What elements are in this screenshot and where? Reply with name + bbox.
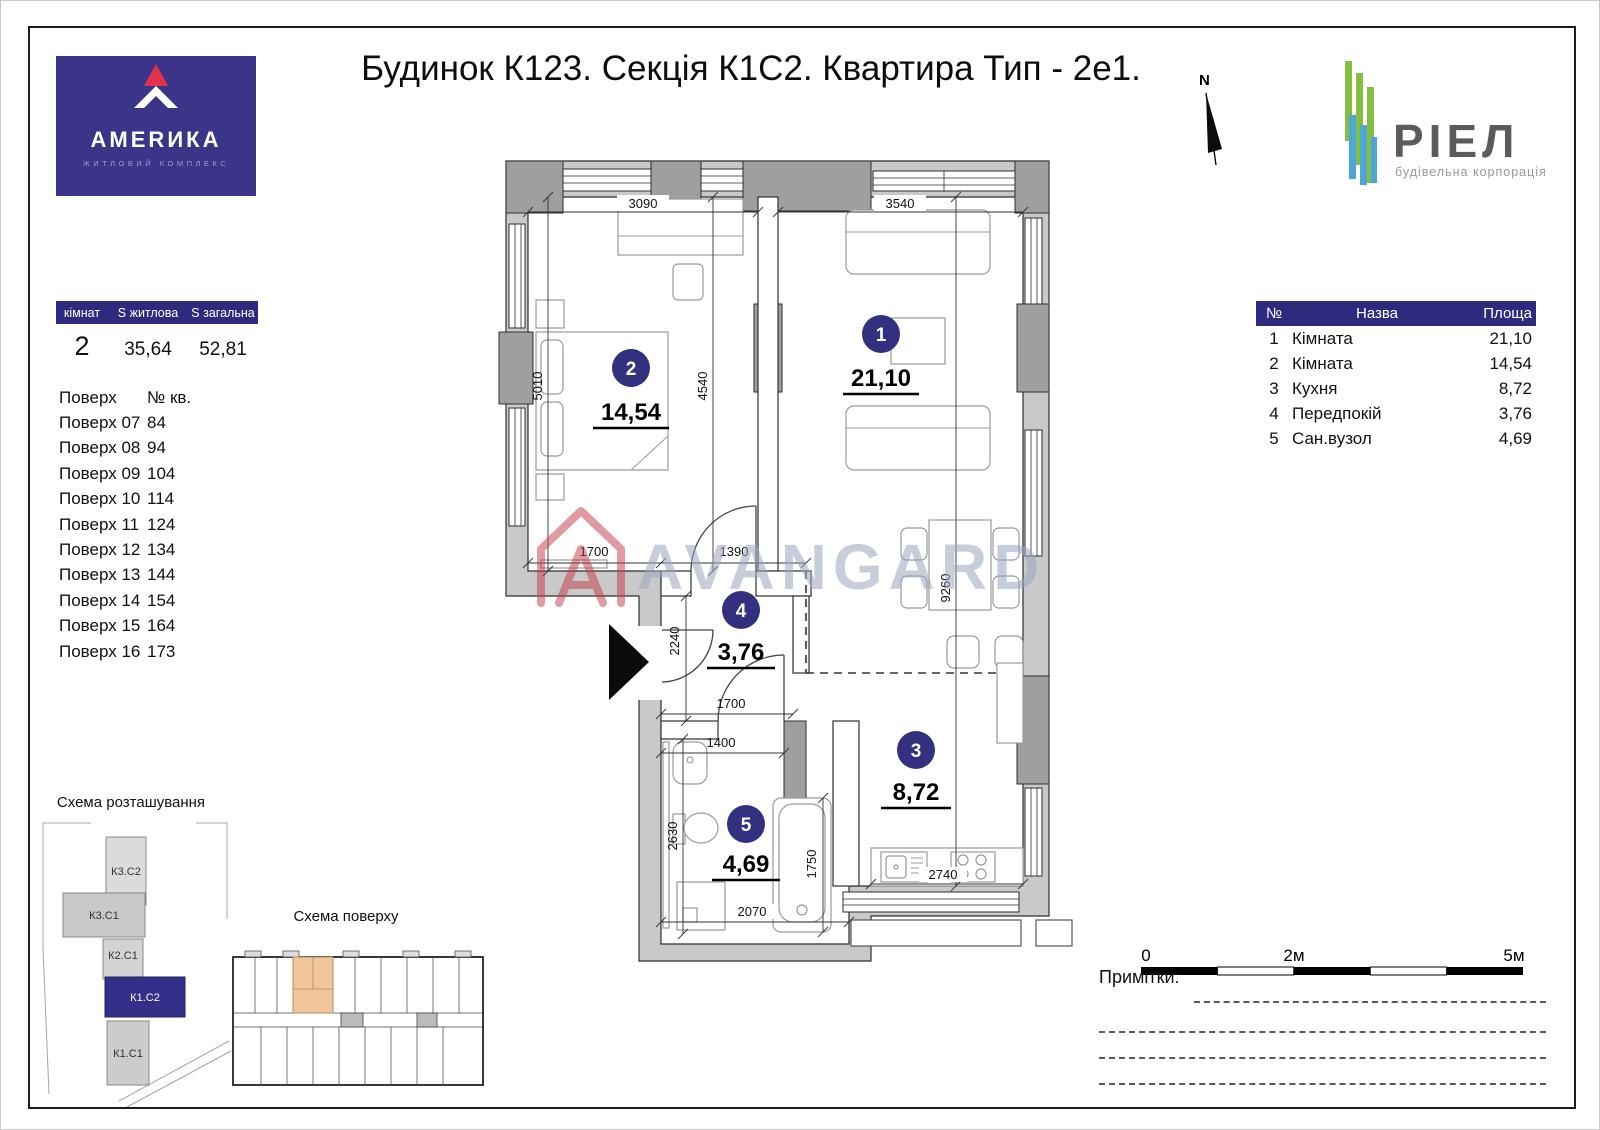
dimension-label: 3540 (886, 196, 915, 211)
table-row: 1Кімната21,10 (1256, 326, 1536, 351)
summary-header: кімнат S житлова S загальна (56, 301, 258, 324)
amerika-name: АМЕRИКА (56, 127, 256, 153)
table-row: 2Кімната14,54 (1256, 351, 1536, 376)
table-row: 4Передпокій3,76 (1256, 401, 1536, 426)
list-item: Поверх 15164 (59, 614, 229, 639)
amerika-mountain-icon (56, 56, 256, 114)
site-building-label: К3.С2 (111, 866, 141, 878)
summary-total: 52,81 (188, 339, 258, 361)
list-item: Поверх 12134 (59, 537, 229, 562)
notes-line (1099, 1083, 1546, 1085)
riel-subtitle: будівельна корпорація (1395, 165, 1547, 179)
dimension-label: 2740 (929, 867, 958, 882)
site-building-label-highlighted: К1.С2 (130, 992, 160, 1004)
legend-col-num: № (1256, 305, 1292, 322)
balcony-slab (1036, 920, 1072, 946)
site-building-label: К1.С1 (113, 1048, 143, 1060)
notes-label: Примітки: (1099, 967, 1180, 988)
furniture-kitchen (871, 663, 1023, 886)
summary-col-total: S загальна (188, 306, 258, 320)
legend-col-area: Площа (1462, 305, 1536, 322)
svg-text:4,69: 4,69 (723, 851, 770, 878)
list-item: Поверх 10114 (59, 487, 229, 512)
dimension-label: 1750 (804, 850, 819, 879)
site-plan: Схема розташування К3.С2 К3.С1 К2.С1 К1.… (31, 789, 241, 1107)
north-arrow-icon: N (1181, 61, 1241, 176)
list-item: Поверх 11124 (59, 512, 229, 537)
svg-text:3,76: 3,76 (718, 639, 765, 666)
riel-stripes-icon (1345, 61, 1377, 185)
room-marker: 4 3,76 (707, 591, 775, 668)
floor-plan: 3090 3540 5010 4540 9260 1700 1390 2240 … (491, 136, 1076, 966)
svg-text:1: 1 (876, 325, 887, 346)
dimension-label: 2070 (738, 904, 767, 919)
floors-list: Поверх № кв. Поверх 0784 Поверх 0894 Пов… (59, 385, 229, 664)
floor-scheme-drawing (233, 951, 483, 1085)
site-building-label: К2.С1 (108, 950, 138, 962)
floor-scheme: Схема поверху (221, 899, 501, 1107)
floors-col-apt: № кв. (147, 388, 191, 408)
north-label: N (1199, 72, 1210, 89)
dimension-label: 3090 (629, 196, 658, 211)
table-row: 3Кухня8,72 (1256, 376, 1536, 401)
furniture-living (846, 210, 1023, 668)
legend-col-name: Назва (1292, 305, 1462, 322)
summary-rooms: 2 (56, 331, 108, 362)
summary-col-rooms: кімнат (56, 306, 108, 320)
svg-text:2: 2 (626, 359, 637, 380)
list-item: Поверх 16173 (59, 639, 229, 664)
dimension-label: 2630 (665, 822, 680, 851)
scale-label-end: 5м (1503, 946, 1524, 965)
dimension-label: 1700 (717, 696, 746, 711)
svg-text:5: 5 (741, 815, 752, 836)
dimension-label: 5010 (530, 372, 545, 401)
page: АМЕRИКА ЖИТЛОВИЙ КОМПЛЕКС Будинок К123. … (0, 0, 1600, 1130)
list-item: Поверх 13144 (59, 563, 229, 588)
scale-label-mid: 2м (1283, 946, 1304, 965)
balcony-slab (851, 920, 1021, 946)
summary-living: 35,64 (108, 339, 188, 361)
dimension-label: 1390 (720, 544, 749, 559)
list-item: Поверх 0784 (59, 410, 229, 435)
summary-col-living: S житлова (108, 306, 188, 320)
svg-text:3: 3 (911, 741, 922, 762)
dimension-label: 2240 (667, 627, 682, 656)
summary-values: 2 35,64 52,81 (56, 331, 258, 362)
riel-logo: РІЕЛ будівельна корпорація (1319, 53, 1559, 188)
site-buildings: К3.С2 К3.С1 К2.С1 К1.С2 К1.С1 (63, 837, 185, 1085)
page-title: Будинок К123. Секція К1С2. Квартира Тип … (271, 49, 1231, 89)
svg-text:8,72: 8,72 (893, 779, 940, 806)
dimension-label: 4540 (695, 372, 710, 401)
dimension-label: 1400 (707, 735, 736, 750)
svg-text:14,54: 14,54 (601, 399, 662, 426)
list-item: Поверх 0894 (59, 436, 229, 461)
notes-line (1194, 1001, 1546, 1003)
notes-line (1099, 1031, 1546, 1033)
svg-text:4: 4 (736, 601, 747, 622)
table-row: 5Сан.вузол4,69 (1256, 426, 1536, 451)
legend-header: № Назва Площа (1256, 301, 1536, 326)
list-item: Поверх 09104 (59, 461, 229, 486)
notes-line (1099, 1057, 1546, 1059)
floors-header: Поверх № кв. (59, 385, 229, 410)
dimension-label: 9260 (938, 574, 953, 603)
room-marker: 3 8,72 (881, 731, 951, 808)
list-item: Поверх 14154 (59, 588, 229, 613)
svg-text:21,10: 21,10 (851, 365, 911, 392)
site-plan-title: Схема розташування (57, 794, 205, 811)
scale-label-start: 0 (1141, 946, 1150, 965)
amerika-logo: АМЕRИКА ЖИТЛОВИЙ КОМПЛЕКС (56, 56, 256, 196)
scale-bar-segments (1141, 967, 1523, 975)
amerika-subtitle: ЖИТЛОВИЙ КОМПЛЕКС (56, 159, 256, 168)
rooms-legend-table: № Назва Площа 1Кімната21,10 2Кімната14,5… (1256, 301, 1536, 451)
floor-scheme-title: Схема поверху (293, 908, 399, 925)
riel-name: РІЕЛ (1393, 115, 1519, 167)
summary-table: кімнат S житлова S загальна 2 35,64 52,8… (56, 301, 258, 362)
site-building-label: К3.С1 (89, 910, 119, 922)
floors-col-floor: Поверх (59, 388, 147, 408)
room-marker: 5 4,69 (712, 805, 780, 880)
dimension-label: 1700 (580, 544, 609, 559)
